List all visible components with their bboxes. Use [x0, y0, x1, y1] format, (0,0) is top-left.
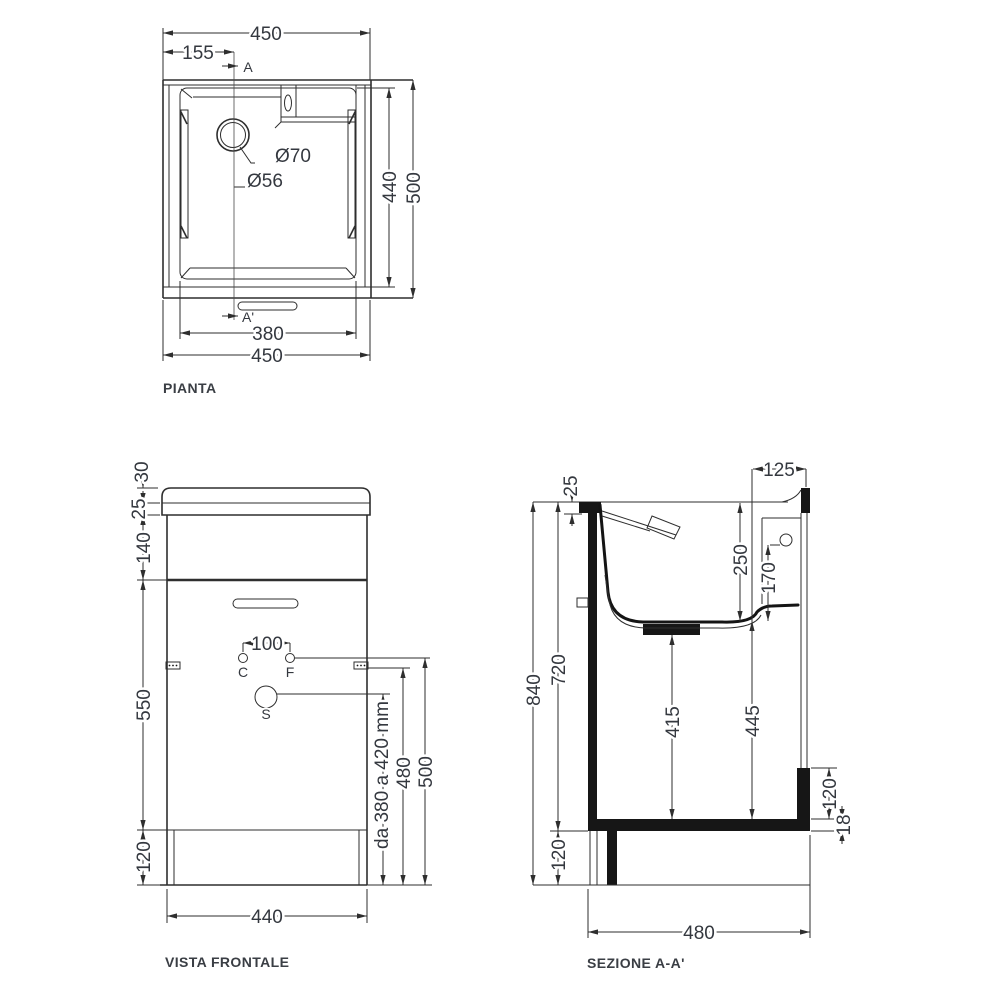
dim-front-splash: 30: [132, 461, 153, 482]
dim-front-bracket-height: 480: [394, 757, 415, 789]
front-bracket-right: [354, 662, 368, 669]
section-rim-cut: [801, 488, 810, 513]
label-cold-tap: F: [286, 664, 295, 680]
label-siphon: S: [261, 706, 270, 722]
dim-front-apron: 140: [134, 532, 155, 564]
plan-dimensions: [163, 28, 413, 361]
dim-front-plinth: 120: [134, 841, 155, 873]
front-outline: [160, 488, 370, 885]
section-bottom-shelf-cut: [588, 819, 810, 831]
dim-section-drain-to-shelf: 415: [663, 706, 684, 738]
dim-front-tap-height: 500: [416, 756, 437, 788]
hot-tap-hole: [239, 654, 248, 663]
label-hot-tap: C: [238, 664, 248, 680]
plan-view-title: PIANTA: [163, 380, 216, 396]
dim-plan-depth: 500: [404, 172, 425, 204]
dim-front-tap-centres: 100: [251, 634, 283, 655]
section-rear-step-cut: [797, 768, 810, 819]
section-dimensions: [533, 469, 850, 938]
plan-view: 450 155 A Ø70 Ø56 440 500 380 450 A' PIA…: [163, 24, 425, 396]
dim-plan-drain-offset: 155: [182, 43, 214, 64]
label-section-a-prime: A': [242, 309, 254, 325]
dim-front-top-thickness: 25: [129, 498, 150, 519]
dim-section-top-thickness: 25: [561, 475, 582, 496]
section-fixing-tab: [577, 598, 588, 607]
dim-section-overflow-height: 170: [759, 562, 780, 594]
dim-plan-width-bottom: 450: [251, 346, 283, 367]
dim-section-basin-to-shelf: 445: [743, 705, 764, 737]
dim-front-cabinet-width: 440: [251, 907, 283, 928]
section-side-panel-cut: [588, 505, 597, 831]
section-view: 25 125 250 170 840 720 415 445 120 18 12…: [524, 460, 855, 971]
dim-plan-width-top: 450: [250, 24, 282, 45]
dim-section-deck-depth: 125: [763, 460, 795, 481]
plan-soap-dish: [275, 85, 356, 128]
front-bracket-left: [166, 662, 180, 669]
dim-section-overall-depth: 480: [683, 923, 715, 944]
technical-drawing-canvas: 450 155 A Ø70 Ø56 440 500 380 450 A' PIA…: [0, 0, 1000, 1000]
dim-section-basin-depth: 250: [731, 544, 752, 576]
dim-plan-inner-width: 380: [252, 324, 284, 345]
plan-outline: [163, 52, 413, 320]
dim-section-worktop-underside: 720: [549, 654, 570, 686]
front-handle-slot: [233, 599, 298, 608]
siphon-hole: [255, 686, 277, 708]
front-view-title: VISTA FRONTALE: [165, 954, 289, 970]
dim-plan-inner-depth: 440: [380, 171, 401, 203]
section-drain-flange: [643, 624, 700, 635]
front-dimensions: [137, 470, 432, 923]
dim-section-plinth-height: 120: [549, 839, 570, 871]
section-view-title: SEZIONE A-A': [587, 955, 685, 971]
dim-plan-drain-outer: Ø70: [275, 146, 311, 167]
dim-front-siphon-range: da 380 a 420 mm: [372, 701, 393, 849]
front-view: 30 25 140 550 120 100 C F S da 380 a 420…: [129, 461, 437, 970]
cold-tap-hole: [286, 654, 295, 663]
dim-section-shelf-thickness: 18: [834, 814, 855, 835]
dim-section-overall-height: 840: [524, 674, 545, 706]
label-section-a: A: [243, 59, 253, 75]
section-washboard: [602, 511, 680, 539]
dim-plan-drain-inner: Ø56: [247, 171, 283, 192]
dim-front-door: 550: [134, 689, 155, 721]
overflow-hole: [780, 534, 792, 546]
dim-section-rear-step: 120: [820, 778, 841, 810]
section-plinth-cut: [607, 831, 617, 885]
